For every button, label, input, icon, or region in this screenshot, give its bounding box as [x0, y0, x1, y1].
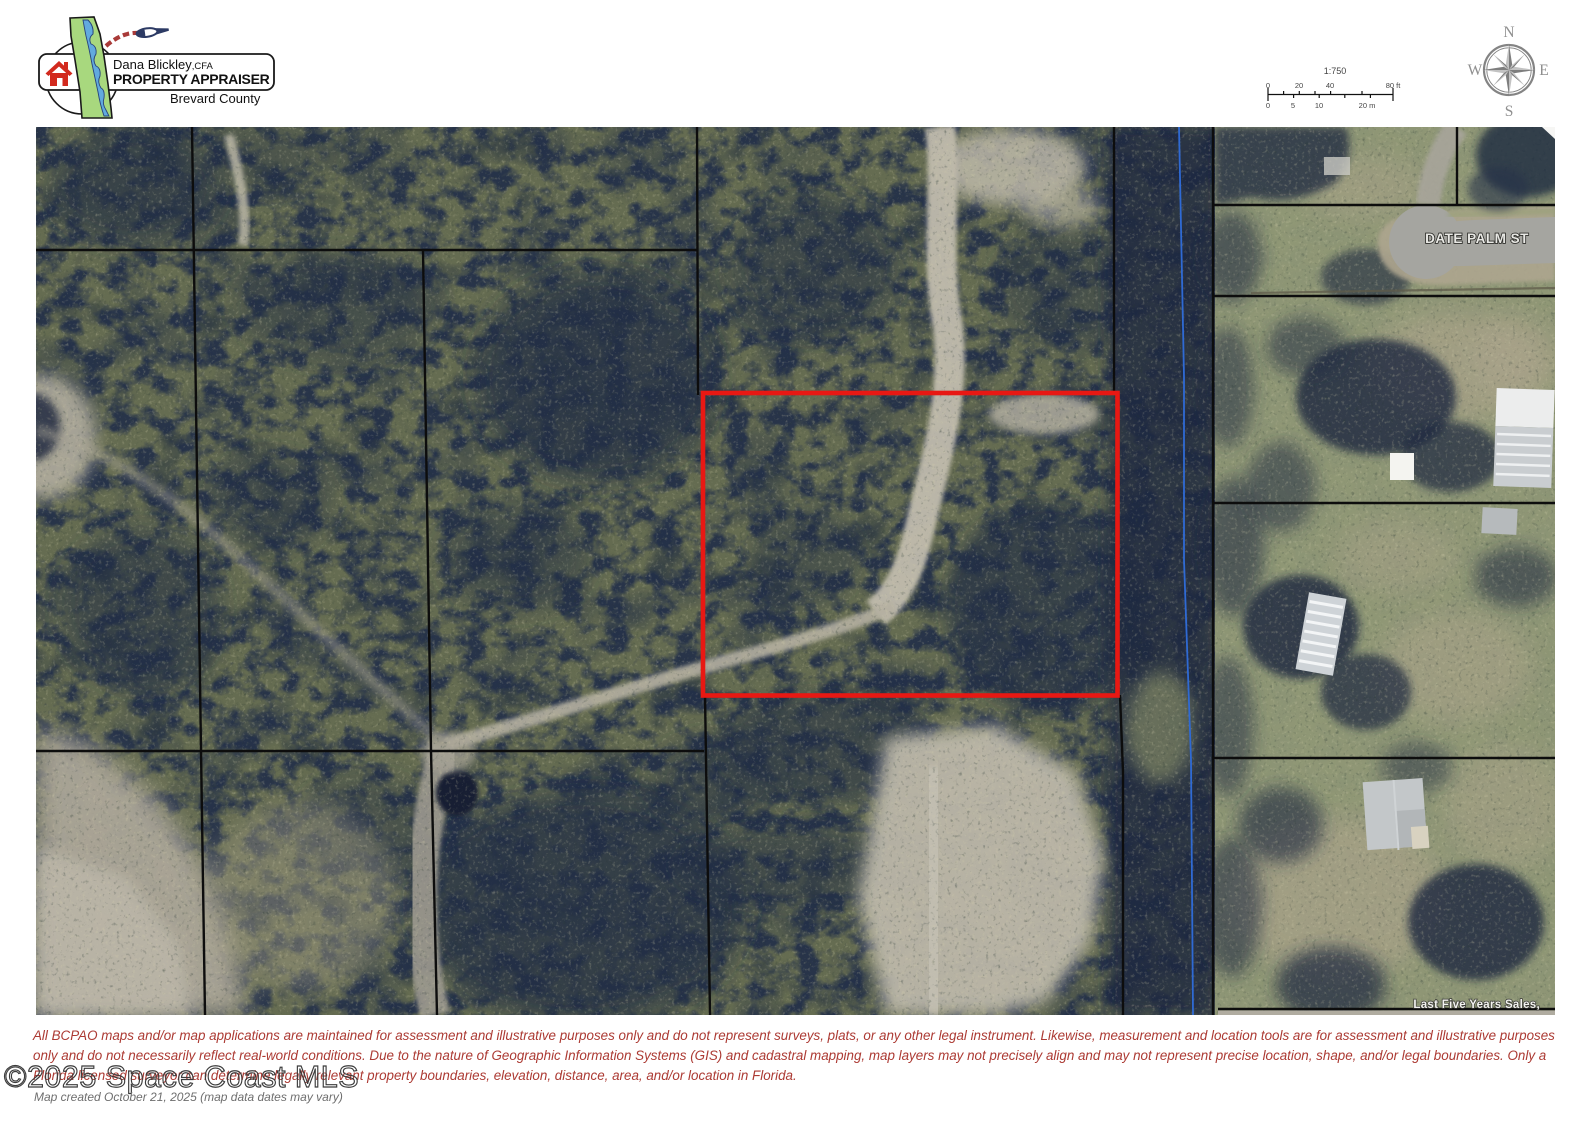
svg-text:Last Five Years Sales,: Last Five Years Sales,: [1413, 999, 1540, 1011]
svg-text:20: 20: [1295, 81, 1303, 90]
svg-text:W: W: [1468, 62, 1483, 79]
svg-text:Brevard County: Brevard County: [170, 91, 261, 106]
svg-text:40: 40: [1326, 81, 1334, 90]
svg-text:S: S: [1505, 103, 1514, 120]
svg-text:0: 0: [1266, 81, 1270, 90]
svg-text:DATE PALM ST: DATE PALM ST: [1425, 231, 1529, 246]
svg-text:20 m: 20 m: [1359, 101, 1376, 110]
svg-text:1:750: 1:750: [1324, 66, 1347, 76]
svg-text:E: E: [1539, 62, 1548, 79]
svg-text:PROPERTY APPRAISER: PROPERTY APPRAISER: [113, 71, 270, 87]
svg-text:N: N: [1503, 24, 1514, 41]
svg-text:80 ft: 80 ft: [1386, 81, 1402, 90]
svg-text:0: 0: [1266, 101, 1270, 110]
svg-text:5: 5: [1291, 101, 1295, 110]
svg-text:10: 10: [1315, 101, 1323, 110]
